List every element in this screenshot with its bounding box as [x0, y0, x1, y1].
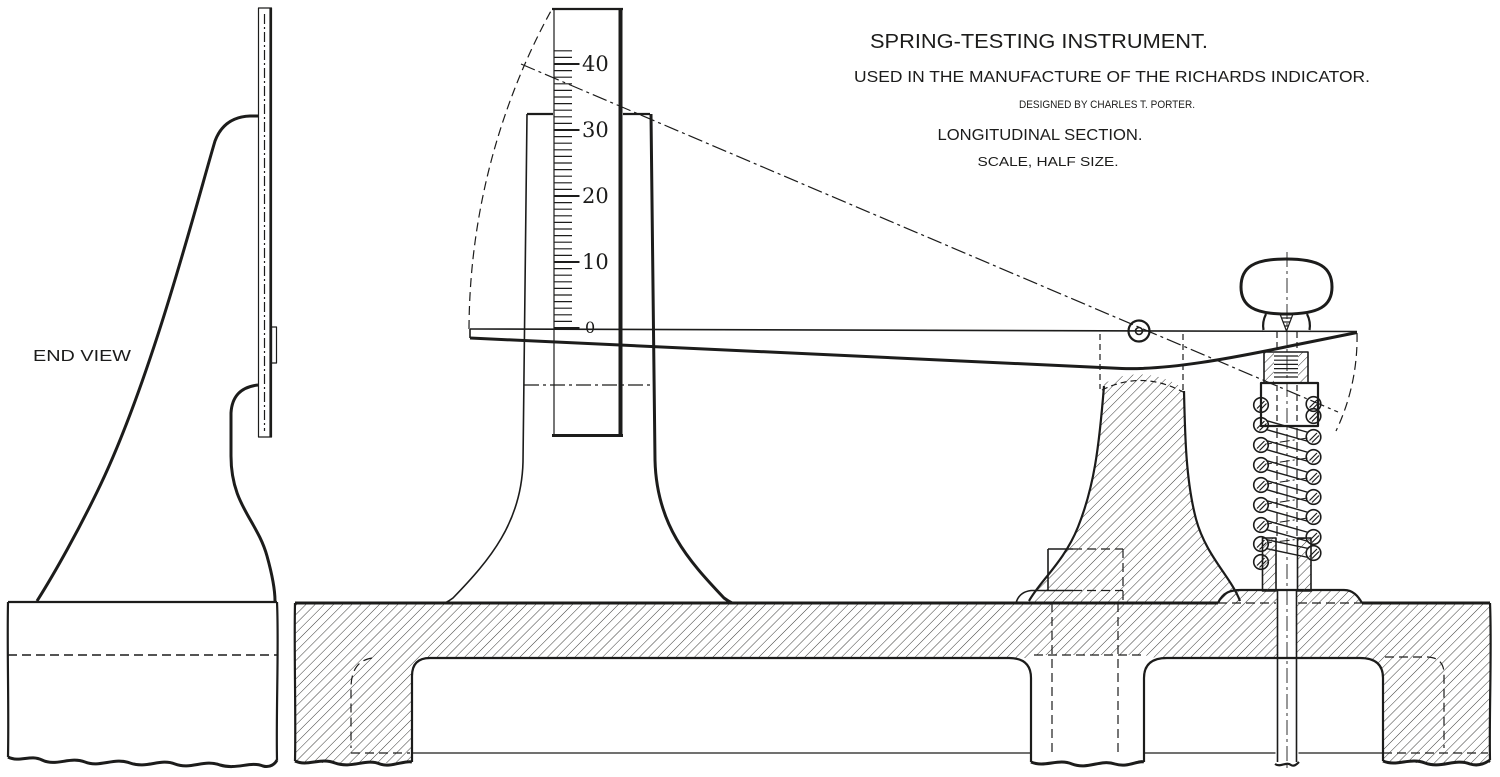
right-foot-inner-edge [1360, 658, 1383, 761]
scale-number-40: 40 [582, 52, 609, 76]
base-hatch [295, 603, 1490, 763]
center-foot-bottom-broken [1031, 762, 1144, 766]
pillar-right-edge [651, 114, 732, 603]
drawing-scale-note: SCALE, HALF SIZE. [978, 155, 1119, 169]
end-view: END VIEW [8, 8, 278, 767]
scale-number-0: 0 [585, 318, 595, 337]
knob-neck-right [1307, 314, 1310, 330]
base-left-edge [295, 603, 296, 761]
end-view-base-right-edge [277, 602, 278, 760]
bushing-right [1298, 538, 1312, 591]
scale-pillar: 40 30 20 10 0 [445, 8, 732, 603]
left-foot-inner-edge [412, 658, 430, 762]
spring-cap [1261, 383, 1318, 426]
center-foot-right [1144, 658, 1167, 762]
thread-lines [1274, 356, 1298, 377]
base-right-broken-edge [1490, 603, 1491, 760]
thread-hatch-right [1298, 352, 1308, 383]
engraving-page: END VIEW [0, 0, 1500, 777]
scale-number-20: 20 [582, 184, 609, 208]
drawing-title: SPRING-TESTING INSTRUMENT. [870, 31, 1208, 53]
knob [1241, 259, 1332, 314]
drawing-view-label: LONGITUDINAL SECTION. [938, 127, 1143, 144]
bushing-left [1263, 538, 1277, 591]
knob-neck-left [1263, 314, 1266, 330]
pillar-left-edge [445, 114, 527, 603]
lever-travel-arc-left [469, 9, 552, 329]
lever-travel-arc-right [1336, 333, 1357, 431]
scale-number-10: 10 [582, 250, 609, 274]
drawing-credit: DESIGNED BY CHARLES T. PORTER. [1019, 99, 1195, 111]
end-view-base-left-edge [8, 602, 9, 757]
title-block: SPRING-TESTING INSTRUMENT. USED IN THE M… [854, 31, 1370, 169]
spring-testing-engraving: END VIEW [0, 0, 1500, 777]
scale-number-30: 30 [582, 118, 609, 142]
end-view-label: END VIEW [33, 348, 132, 365]
fulcrum-post-hatch [1029, 374, 1240, 603]
drawing-subtitle: USED IN THE MANUFACTURE OF THE RICHARDS … [854, 69, 1370, 86]
end-view-base-bottom-broken-edge [8, 757, 277, 767]
end-view-clip [272, 327, 277, 363]
center-foot-left [1009, 658, 1031, 762]
thread-hatch-left [1264, 352, 1274, 383]
